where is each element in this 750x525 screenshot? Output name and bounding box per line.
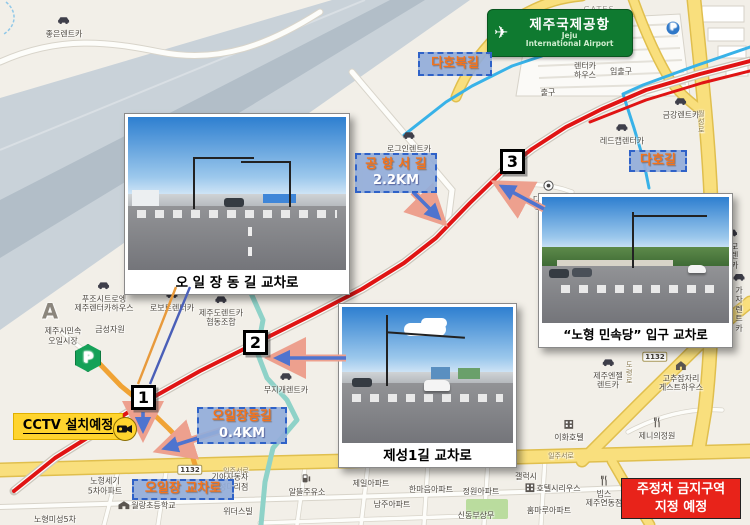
car-icon bbox=[732, 272, 746, 285]
map-poi-label: 제주시민속 오일시장 bbox=[45, 326, 82, 345]
cctv-planned-label: CCTV 설치예정 bbox=[13, 413, 123, 440]
car-icon bbox=[279, 371, 293, 384]
map-poi: P bbox=[667, 22, 680, 35]
map-poi: 노형세기 5차아파트 bbox=[88, 476, 123, 495]
map-poi: 월성로 bbox=[697, 110, 705, 134]
no-parking-zone-notice: 주정차 금지구역 지정 예정 bbox=[621, 478, 741, 519]
map-poi: 제주시민속 오일시장 bbox=[45, 326, 82, 345]
map-poi-label: 일주서로 bbox=[548, 452, 574, 460]
callout-text: 0.4KM bbox=[219, 426, 265, 442]
location-marker-3: 3 bbox=[500, 149, 525, 174]
car-icon bbox=[402, 130, 416, 143]
car-icon bbox=[57, 15, 71, 28]
map-poi-label: 남주아파트 bbox=[374, 500, 411, 510]
map-poi: 좋은렌트카 bbox=[46, 15, 83, 38]
map-poi-label: 무지개렌트카 bbox=[264, 385, 308, 395]
map-poi-label: 금성자원 bbox=[95, 325, 124, 335]
map-poi-label: 알뜰주유소 bbox=[289, 487, 326, 497]
map-poi-label: 이화호텔 bbox=[554, 433, 583, 443]
map-poi-label: 도령로 bbox=[625, 361, 633, 385]
map-poi-label: 고추잠자리 게스트하우스 bbox=[659, 374, 703, 393]
map-poi-label: 월성로 bbox=[697, 110, 705, 134]
map-poi: 갤럭시 bbox=[515, 472, 537, 482]
map-poi: 입출구 bbox=[610, 67, 632, 77]
road-callout-label: 다호길 bbox=[629, 150, 687, 172]
gas-icon bbox=[302, 473, 312, 486]
map-poi-label: 노형미성5차 bbox=[34, 515, 76, 525]
callout-text: 2.2KM bbox=[373, 173, 419, 189]
map-poi-label: 노형세기 5차아파트 bbox=[88, 476, 123, 495]
airport-sign: ✈ 제주국제공항 Jeju International Airport bbox=[487, 9, 633, 57]
map-poi-label: 빕스 제주연동점 bbox=[586, 489, 623, 508]
map-poi: 제주도렌트카 협동조합 bbox=[199, 295, 243, 328]
map-poi: 출구 bbox=[541, 88, 556, 98]
callout-text: 다호길 bbox=[640, 153, 676, 169]
photo-jeseong-intersection bbox=[342, 307, 513, 443]
cctv-label-text: CCTV 설치예정 bbox=[23, 419, 113, 434]
map-poi: 일주서로 bbox=[548, 452, 574, 460]
map-poi: A bbox=[42, 299, 58, 324]
map-poi-label: 가자 렌트카 bbox=[732, 286, 746, 334]
map-poi: 1132 bbox=[177, 465, 202, 475]
map-poi: 레드캡렌터카 bbox=[600, 122, 644, 145]
map-poi-label: 출구 bbox=[541, 88, 556, 98]
map-poi-label: 제주도렌트카 협동조합 bbox=[199, 308, 243, 327]
airport-sub2: International Airport bbox=[511, 40, 628, 48]
car-icon bbox=[97, 281, 111, 294]
map-poi-label: 1132 bbox=[177, 465, 202, 475]
map-poi: 1132 bbox=[642, 352, 667, 362]
photo-caption: “노형 민속당” 입구 교차로 bbox=[542, 323, 729, 344]
hotel-icon bbox=[564, 420, 573, 432]
map-poi: P bbox=[75, 344, 101, 372]
map-poi-label: 한마음아파트 bbox=[409, 485, 453, 495]
map-poi: 월랑초등학교 bbox=[118, 500, 175, 512]
photo-inset-oiljangdong: 오 일 장 동 길 교차로 bbox=[124, 113, 350, 295]
airport-title: 제주국제공항 bbox=[511, 18, 628, 32]
map-poi-label: 호텔시리우스 bbox=[536, 484, 580, 494]
map-poi-label: 신동부상무 bbox=[458, 511, 495, 521]
car-icon bbox=[214, 295, 228, 308]
map-poi-label: 렌터카 하우스 bbox=[574, 61, 596, 80]
map-poi: 도령로 bbox=[625, 361, 633, 385]
map-poi: 빕스 제주연동점 bbox=[586, 476, 623, 509]
map-poi: 위더스빌 bbox=[223, 507, 252, 517]
map-poi-label: 홈마루아파트 bbox=[527, 506, 571, 516]
notice-line1: 주정차 금지구역 bbox=[637, 481, 725, 499]
hotel-icon bbox=[525, 483, 534, 495]
airplane-icon: ✈ bbox=[494, 23, 508, 43]
map-poi-label: 로보트렌터카 bbox=[150, 303, 194, 313]
parking-icon: P bbox=[75, 344, 101, 372]
map-poi-label: 정원아파트 bbox=[463, 487, 500, 497]
photo-inset-nohyeong-minsokdang: “노형 민속당” 입구 교차로 bbox=[538, 193, 733, 348]
cctv-camera-icon bbox=[113, 417, 137, 441]
annotated-map-figure: 좋은렌트카GATES렌터카 하우스입출구출구P금강렌트카레드캡렌터카로그인렌트카… bbox=[0, 0, 750, 525]
map-poi: 로그인렌트카 bbox=[387, 130, 431, 153]
parking-icon: P bbox=[667, 22, 680, 35]
location-marker-2: 2 bbox=[243, 330, 268, 355]
map-poi: 노형미성5차 bbox=[34, 515, 76, 525]
map-poi-label: 푸조시트로엥 제주렌터카하우스 bbox=[75, 294, 134, 313]
location-marker-1: 1 bbox=[131, 385, 156, 410]
map-poi: 홈마루아파트 bbox=[527, 506, 571, 516]
map-poi-label: A bbox=[42, 299, 58, 324]
map-poi-label: 좋은렌트카 bbox=[46, 29, 83, 39]
car-icon bbox=[674, 96, 688, 109]
map-poi-label: 금강렌트카 bbox=[663, 110, 700, 120]
map-poi: 신동부상무 bbox=[458, 511, 495, 521]
map-poi: 무지개렌트카 bbox=[264, 371, 308, 394]
photo-caption: 오 일 장 동 길 교차로 bbox=[128, 270, 346, 291]
callout-text: 오일장동길 bbox=[212, 409, 272, 425]
map-poi-label: 입출구 bbox=[610, 67, 632, 77]
map-poi: 이화호텔 bbox=[554, 420, 583, 442]
road-callout-label: 오일장동길0.4KM bbox=[197, 407, 287, 444]
map-poi: 호텔시리우스 bbox=[525, 483, 580, 495]
photo-inset-jeseong1gil: 제성1길 교차로 bbox=[338, 303, 517, 468]
map-poi: 제니의정원 bbox=[639, 417, 676, 440]
map-poi: 금성자원 bbox=[95, 325, 124, 335]
fork-icon bbox=[653, 417, 662, 430]
map-poi: 가자 렌트카 bbox=[732, 272, 746, 334]
map-poi-label: 1132 bbox=[642, 352, 667, 362]
car-icon bbox=[601, 358, 615, 371]
callout-text: 다호북길 bbox=[431, 56, 479, 72]
callout-text: 공 항 서 길 bbox=[365, 157, 426, 173]
map-poi-label: 제일아파트 bbox=[353, 479, 390, 489]
road-callout-label: 공 항 서 길2.2KM bbox=[355, 153, 437, 193]
callout-text: 오일장 교차로 bbox=[145, 481, 221, 497]
map-poi: 정원아파트 bbox=[463, 487, 500, 497]
house-icon bbox=[676, 361, 686, 373]
map-poi-label: 제니의정원 bbox=[639, 431, 676, 441]
fork-icon bbox=[600, 476, 609, 489]
photo-nohyeong-intersection bbox=[542, 197, 729, 323]
map-poi: 금강렌트카 bbox=[663, 96, 700, 119]
map-poi-label: 위더스빌 bbox=[223, 507, 252, 517]
car-icon bbox=[615, 122, 629, 135]
map-poi: 남주아파트 bbox=[374, 500, 411, 510]
road-callout-label: 오일장 교차로 bbox=[132, 479, 234, 500]
notice-line2: 지정 예정 bbox=[655, 499, 707, 517]
map-poi-label: 제주엔젤 렌트카 bbox=[593, 371, 622, 390]
map-poi: 고추잠자리 게스트하우스 bbox=[659, 361, 703, 393]
school-icon bbox=[118, 500, 129, 512]
map-poi: 알뜰주유소 bbox=[289, 473, 326, 496]
map-poi-label: 월랑초등학교 bbox=[131, 501, 175, 511]
map-poi: 한마음아파트 bbox=[409, 485, 453, 495]
road-callout-label: 다호북길 bbox=[418, 52, 492, 76]
dot-icon bbox=[543, 180, 554, 194]
map-poi: 제일아파트 bbox=[353, 479, 390, 489]
map-poi: 제주엔젤 렌트카 bbox=[593, 358, 622, 391]
photo-oiljangdong-intersection bbox=[128, 117, 346, 270]
map-poi-label: 레드캡렌터카 bbox=[600, 136, 644, 146]
photo-caption: 제성1길 교차로 bbox=[342, 443, 513, 464]
map-poi-label: 갤럭시 bbox=[515, 472, 537, 482]
